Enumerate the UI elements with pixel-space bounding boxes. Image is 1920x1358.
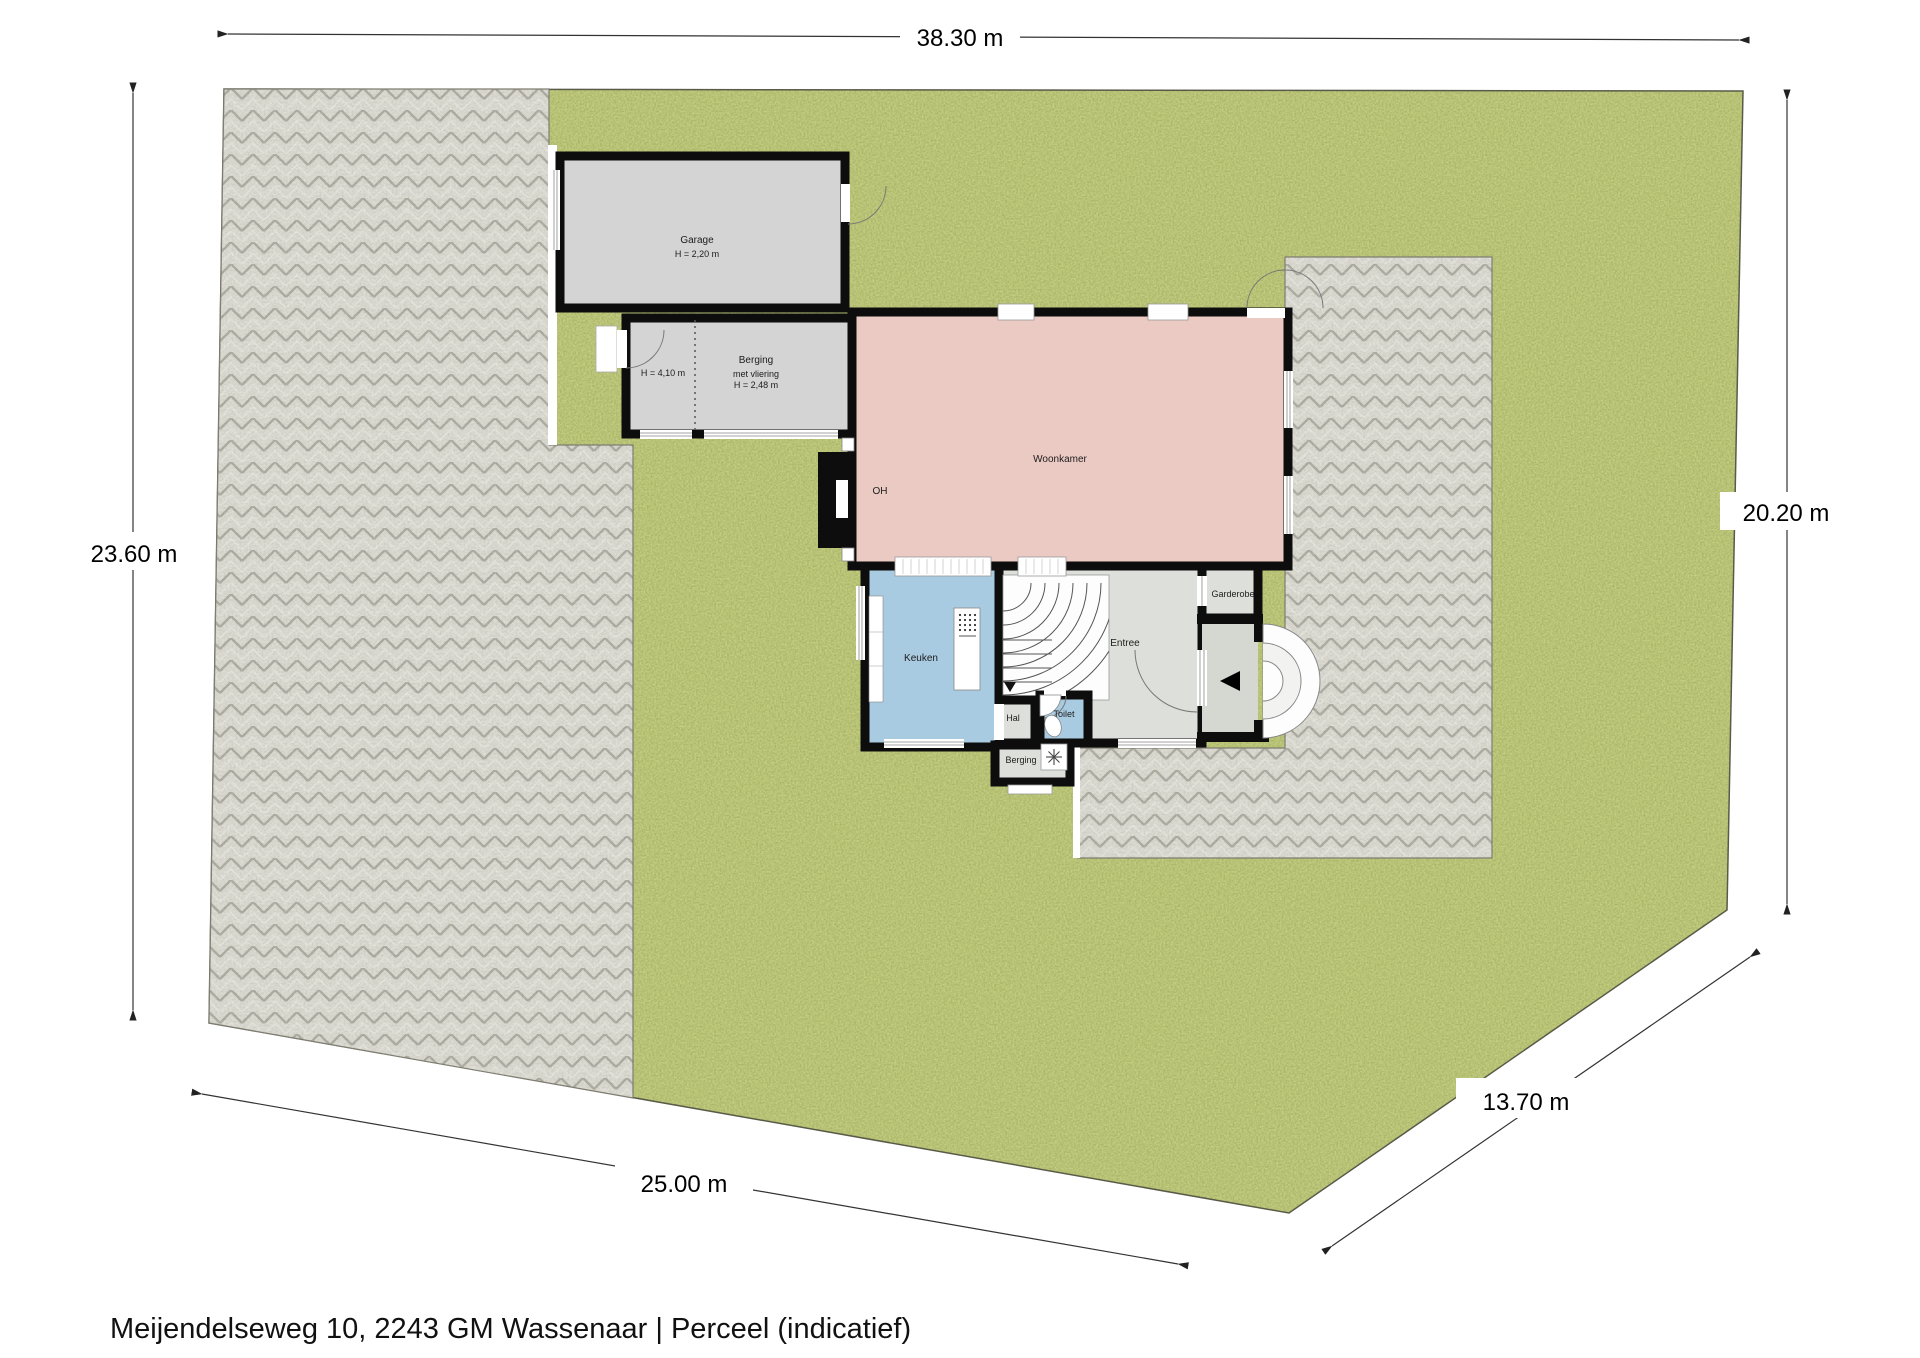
- fireplace-notch: [836, 480, 848, 518]
- door-opening: [617, 330, 627, 368]
- woonkamer-label: Woonkamer: [1033, 454, 1087, 465]
- wall: [1254, 614, 1263, 642]
- window: [884, 739, 964, 748]
- entree-label: Entree: [1110, 638, 1140, 649]
- garderobe-label: Garderobe: [1211, 589, 1254, 599]
- sill-2: [1018, 557, 1066, 576]
- berging2-label: Berging: [1005, 755, 1036, 765]
- berging-label: Berging: [739, 355, 773, 366]
- window: [1148, 304, 1188, 320]
- window: [1284, 476, 1293, 534]
- ventilation-unit-icon: [1041, 744, 1067, 770]
- window: [551, 170, 560, 250]
- wall-window-small: [842, 438, 854, 451]
- dim-diagonal-label: 13.70 m: [1483, 1089, 1570, 1116]
- room-garage: [560, 156, 845, 308]
- fireplace-label: OH: [873, 486, 888, 497]
- berging-note-label: met vliering: [733, 369, 779, 379]
- toilet-label: Toilet: [1053, 709, 1075, 719]
- door-landing: [596, 326, 617, 372]
- door-sill: [1008, 785, 1052, 794]
- site-plan-page: 38.30 m 23.60 m 20.20 m 25.00 m 13.70 m: [0, 0, 1920, 1358]
- fireplace: [818, 438, 854, 561]
- front-door-opening: [1197, 650, 1207, 706]
- door-opening: [1247, 308, 1285, 318]
- terrace-pattern-arm: [1078, 748, 1292, 858]
- window: [856, 586, 865, 660]
- dim-right-label: 20.20 m: [1743, 500, 1830, 527]
- berging-height-label: H = 2,48 m: [734, 380, 778, 390]
- door-opening: [994, 704, 1004, 740]
- window: [704, 430, 838, 439]
- hal-label: Hal: [1006, 713, 1020, 723]
- window: [1284, 371, 1293, 428]
- room-woonkamer: [852, 312, 1288, 566]
- page-caption: Meijendelseweg 10, 2243 GM Wassenaar | P…: [110, 1313, 911, 1345]
- dim-top-label: 38.30 m: [917, 25, 1004, 52]
- stove-hob-icon: [954, 608, 980, 690]
- keuken-label: Keuken: [904, 653, 938, 664]
- window: [640, 430, 692, 439]
- garage-height-label: H = 2,20 m: [675, 249, 719, 259]
- window: [998, 304, 1034, 320]
- terrace-pattern-main: [1285, 257, 1492, 858]
- wall-window-small: [842, 548, 854, 561]
- dim-left-label: 23.60 m: [91, 541, 178, 568]
- garage-label: Garage: [680, 235, 714, 246]
- dim-bottom-label: 25.00 m: [641, 1171, 728, 1198]
- window: [1118, 739, 1196, 748]
- berging-left-height-label: H = 4,10 m: [641, 368, 685, 378]
- site-plan-svg: 38.30 m 23.60 m 20.20 m 25.00 m 13.70 m: [0, 0, 1920, 1358]
- sill-1: [895, 557, 991, 576]
- kitchen-counter: [869, 596, 883, 702]
- door-opening: [841, 184, 850, 222]
- wall: [1197, 614, 1263, 624]
